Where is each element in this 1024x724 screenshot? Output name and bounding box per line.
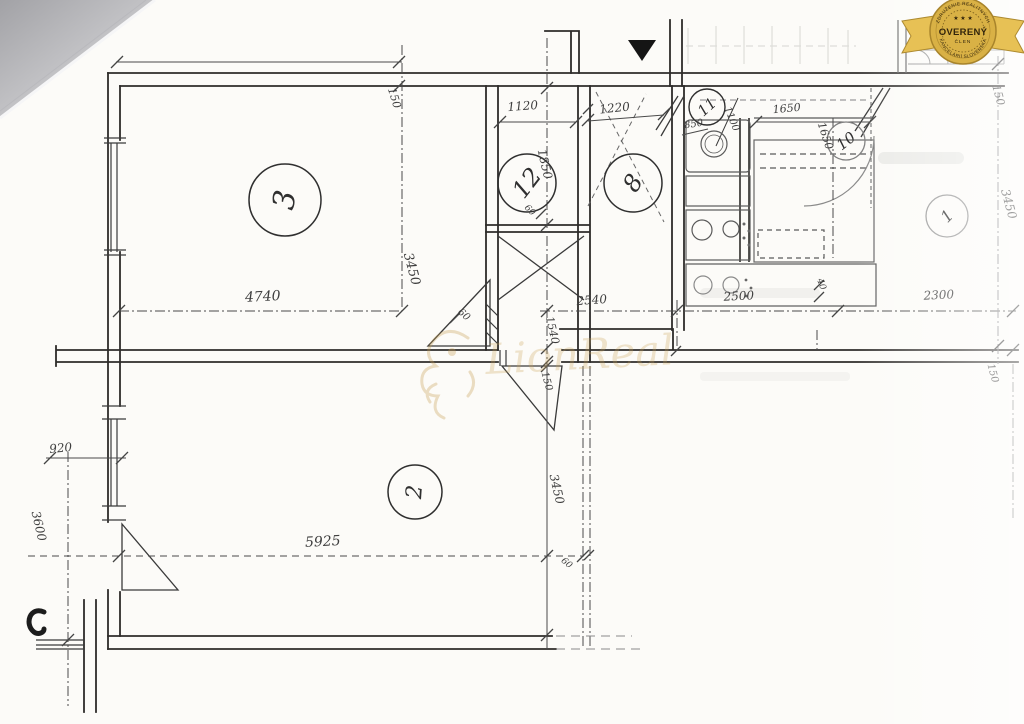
room-number-2: 2: [402, 484, 428, 501]
dim-2500: 2500: [722, 288, 755, 304]
dim-920: 920: [49, 440, 73, 456]
badge-member: ČLEN: [955, 38, 972, 45]
dim-4740: 4740: [244, 288, 282, 306]
badge-stars: ★ ★ ★: [953, 15, 972, 22]
watermark-text: LionReal: [483, 325, 675, 384]
dim-2540: 2540: [575, 292, 608, 308]
dim-1650-h: 1650: [772, 101, 801, 116]
floor-plan-drawing: 3 12 8 11 10 1 2 150 4740 3450: [0, 0, 1024, 724]
scan-fade-overlay: [856, 0, 1024, 724]
badge-title: OVERENÝ: [939, 26, 988, 38]
scanned-floorplan-page: 3 12 8 11 10 1 2 150 4740 3450: [0, 0, 1024, 724]
dim-5925: 5925: [305, 533, 342, 551]
dim-1120: 1120: [507, 98, 539, 114]
watermark-lion-eye: [448, 348, 456, 356]
